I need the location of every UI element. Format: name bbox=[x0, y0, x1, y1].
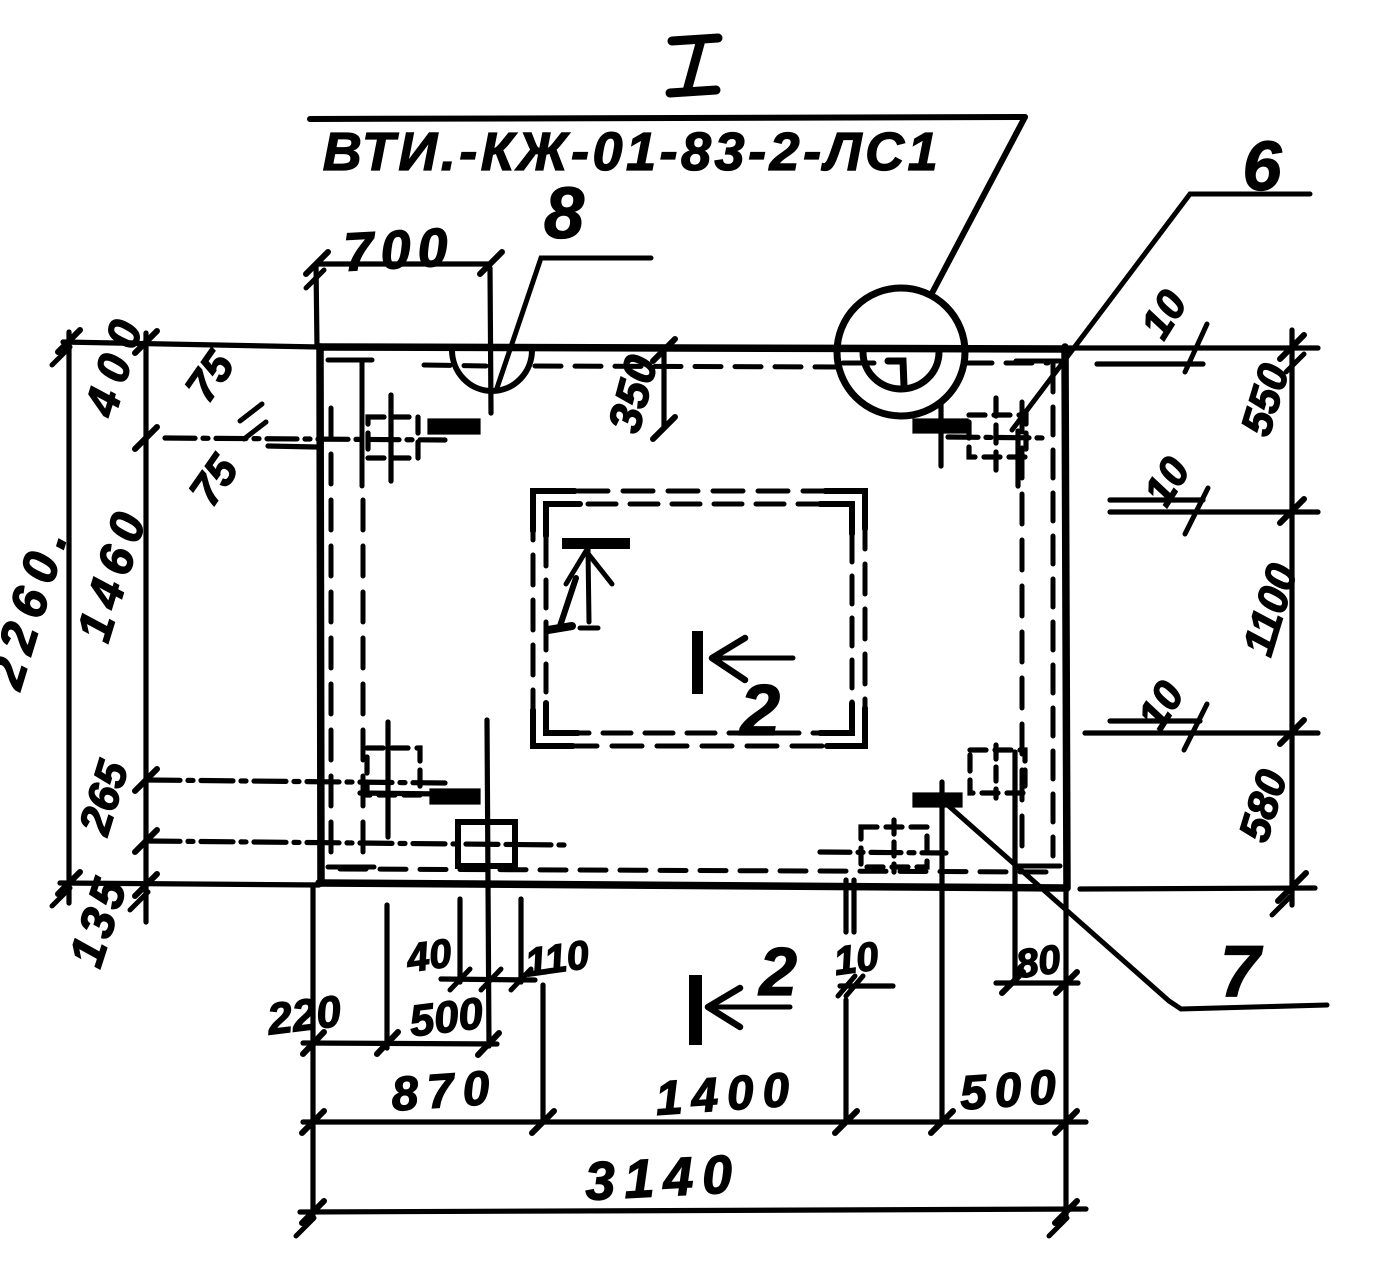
svg-text:500: 500 bbox=[958, 1060, 1066, 1120]
svg-text:3140: 3140 bbox=[584, 1144, 743, 1212]
svg-text:10: 10 bbox=[831, 934, 881, 984]
svg-text:80: 80 bbox=[1013, 937, 1063, 987]
svg-text:500: 500 bbox=[407, 989, 486, 1047]
svg-text:7: 7 bbox=[1220, 932, 1263, 1012]
svg-text:6: 6 bbox=[1243, 127, 1283, 205]
svg-text:2: 2 bbox=[757, 934, 797, 1010]
svg-text:870: 870 bbox=[390, 1061, 501, 1121]
svg-text:110: 110 bbox=[523, 933, 592, 985]
svg-text:8: 8 bbox=[544, 174, 584, 254]
svg-text:1400: 1400 bbox=[654, 1063, 800, 1126]
svg-text:ВТИ.-КЖ-01-83-2-ЛС1: ВТИ.-КЖ-01-83-2-ЛС1 bbox=[323, 122, 941, 182]
svg-text:700: 700 bbox=[342, 217, 456, 283]
svg-text:220: 220 bbox=[264, 987, 344, 1045]
svg-text:2: 2 bbox=[738, 671, 780, 751]
svg-text:40: 40 bbox=[403, 931, 454, 981]
